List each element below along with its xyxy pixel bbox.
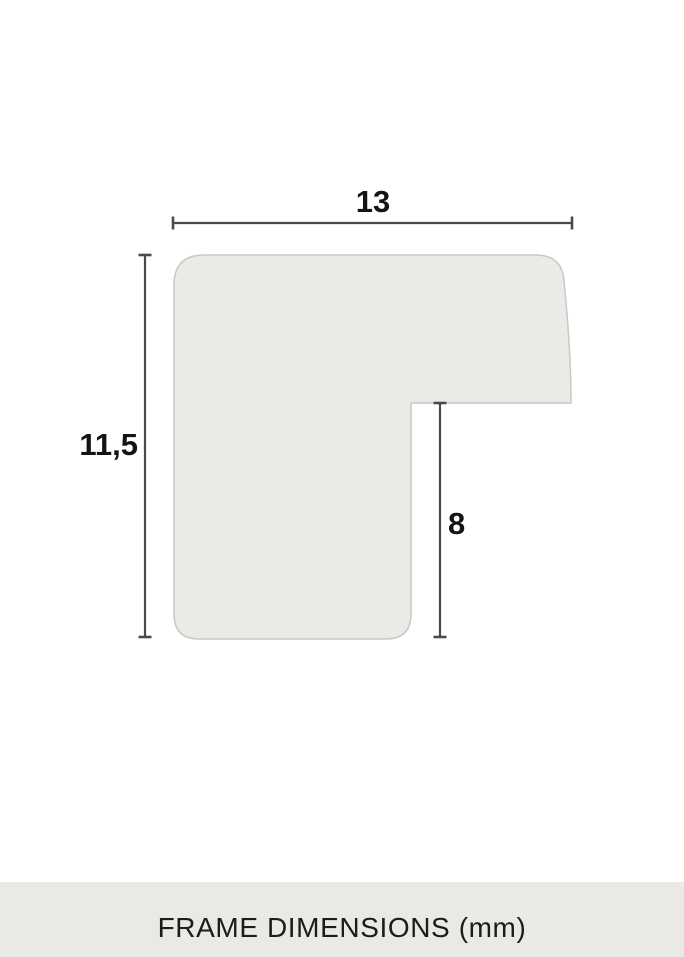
inner-height-dimension-line bbox=[434, 403, 447, 637]
footer-title: FRAME DIMENSIONS (mm) bbox=[158, 912, 527, 944]
inner-height-dimension-label: 8 bbox=[448, 506, 488, 542]
footer-bar: FRAME DIMENSIONS (mm) bbox=[0, 882, 684, 957]
height-dimension-line bbox=[139, 255, 152, 637]
frame-dimensions-page: 13 11,5 8 FRAME DIMENSIONS (mm) bbox=[0, 0, 684, 957]
frame-profile-diagram bbox=[0, 0, 684, 700]
height-dimension-label: 11,5 bbox=[58, 427, 138, 463]
width-dimension-label: 13 bbox=[338, 184, 408, 220]
frame-profile-shape bbox=[174, 255, 571, 639]
